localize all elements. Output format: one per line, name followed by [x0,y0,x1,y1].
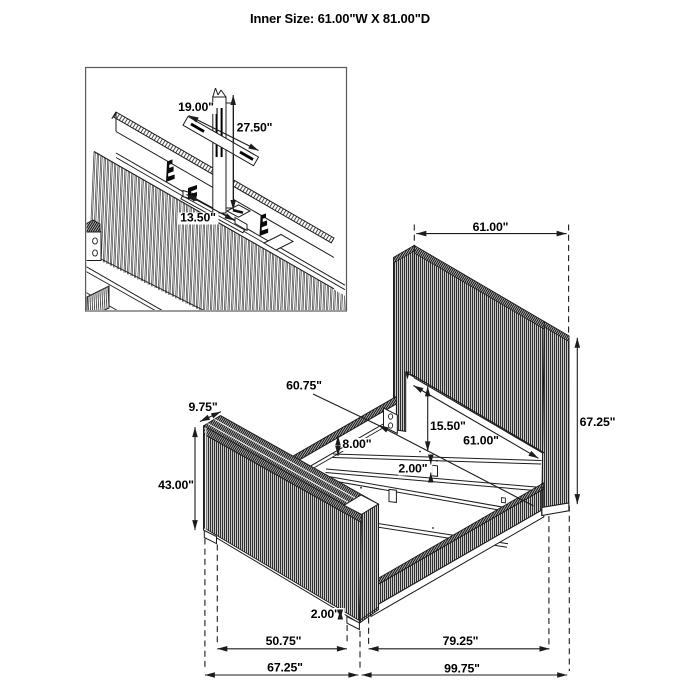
svg-text:67.25": 67.25" [580,415,616,429]
svg-text:79.25": 79.25" [443,634,479,648]
svg-text:27.50": 27.50" [237,121,273,135]
svg-text:2.00": 2.00" [311,607,340,621]
svg-text:15.50": 15.50" [430,419,466,433]
svg-text:19.00": 19.00" [178,100,214,114]
svg-text:50.75": 50.75" [266,634,302,648]
svg-text:9.75": 9.75" [188,400,217,414]
svg-text:61.00": 61.00" [463,434,499,448]
svg-text:67.25": 67.25" [267,661,303,675]
svg-text:Inner Size: 61.00"W X 81.00"D: Inner Size: 61.00"W X 81.00"D [250,11,430,26]
svg-text:99.75": 99.75" [444,662,480,676]
svg-text:2.00": 2.00" [398,462,427,476]
svg-text:60.75": 60.75" [286,379,322,393]
svg-text:61.00": 61.00" [473,220,509,234]
svg-text:13.50": 13.50" [180,211,216,225]
svg-text:8.00": 8.00" [342,437,371,451]
svg-text:43.00": 43.00" [158,478,194,492]
